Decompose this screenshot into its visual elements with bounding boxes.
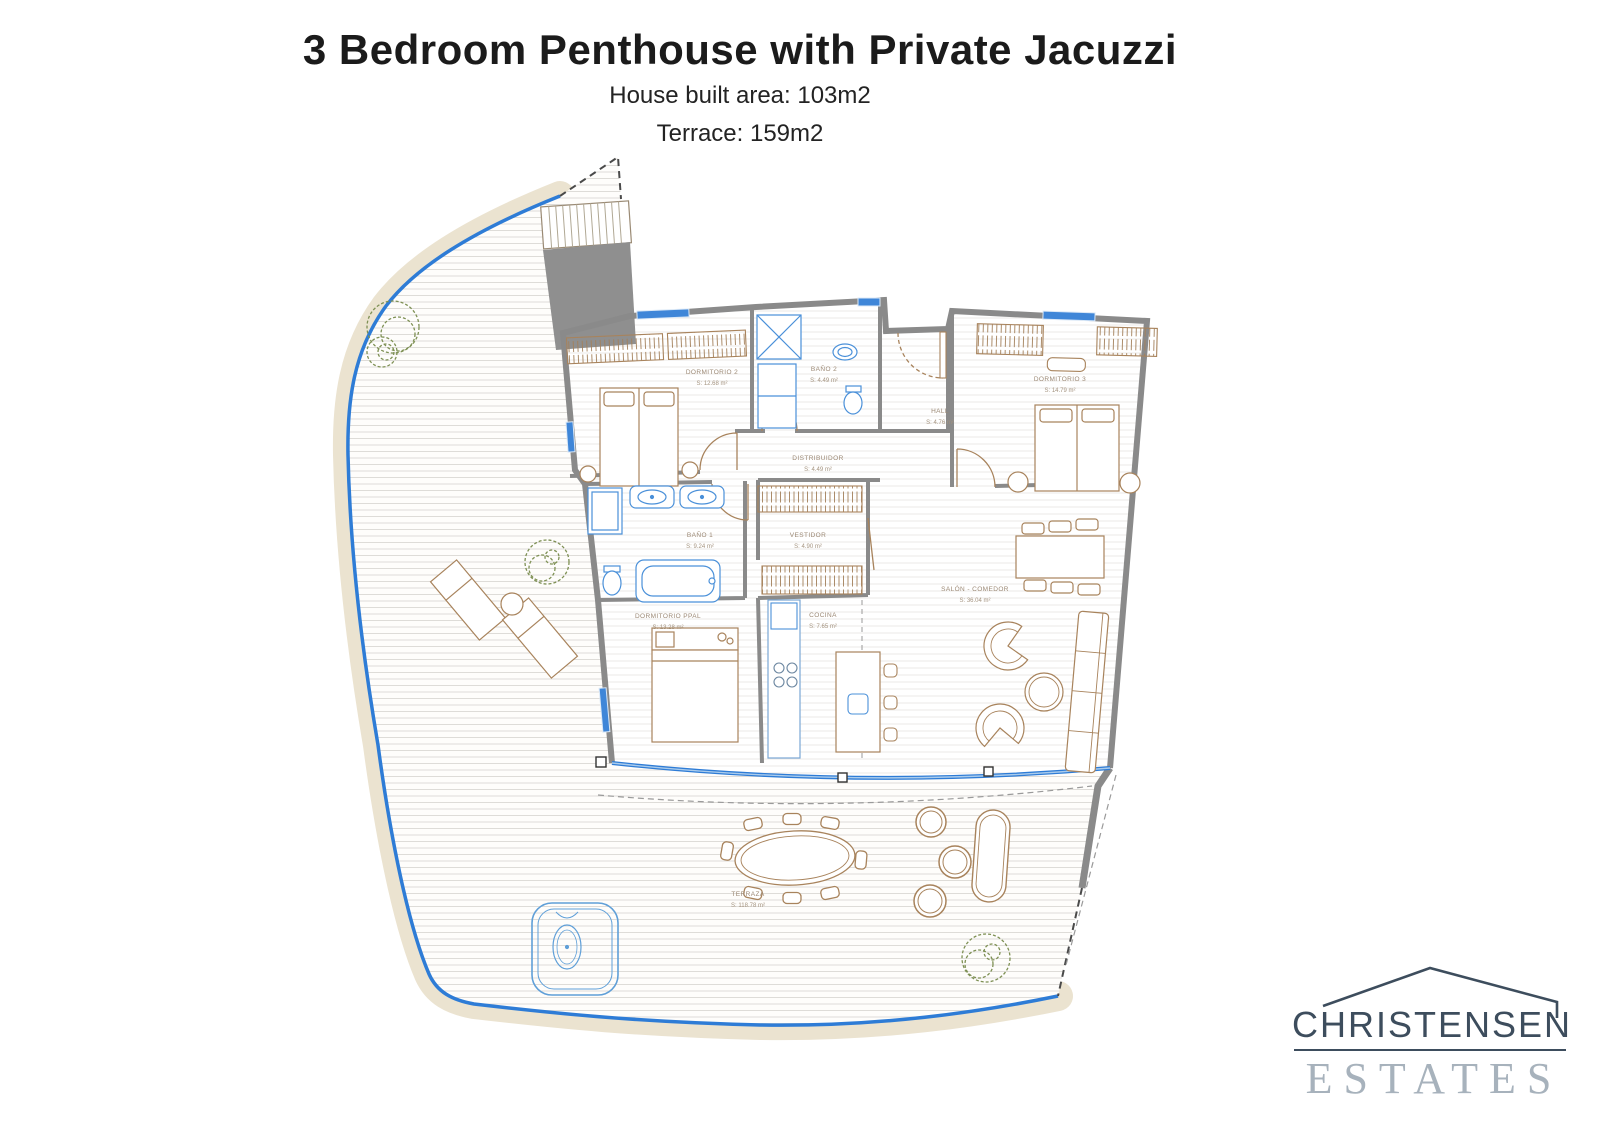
dorm2-nightstand (580, 466, 596, 482)
window-dorm3 (1043, 311, 1095, 321)
room-label-hall: HALL (931, 408, 949, 415)
dorm3-nightstand (1120, 473, 1140, 493)
room-area-salon-comedor: S: 36.04 m² (959, 598, 990, 604)
room-label-dormitorio-3: DORMITORIO 3 (1034, 376, 1086, 383)
room-area-vestidor: S: 4.90 m² (794, 544, 822, 550)
coffee-table (1025, 673, 1063, 711)
page: 3 Bedroom Penthouse with Private Jacuzzi… (0, 0, 1600, 1131)
window-left-wall (566, 422, 575, 452)
dorm3-bench (1047, 358, 1085, 372)
dorm3-nightstand (1008, 472, 1028, 492)
bano2-toilet (844, 392, 862, 414)
bano1-toilet (603, 571, 621, 595)
stairwell (541, 201, 632, 249)
kitchen-fridge (771, 603, 797, 629)
dormppal-bed (652, 628, 738, 742)
room-area-cocina: S: 7.65 m² (809, 624, 837, 630)
island-sink (848, 694, 868, 714)
building-core (543, 242, 636, 350)
logo-line1: CHRISTENSEN (1292, 1004, 1568, 1046)
logo-divider (1294, 1049, 1566, 1051)
room-area-bano-2: S: 4.49 m² (810, 378, 838, 384)
room-label-distribuidor: DISTRIBUIDOR (792, 455, 843, 462)
room-label-cocina: COCINA (809, 612, 837, 619)
room-area-dormitorio-2: S: 12.68 m² (696, 381, 727, 387)
window-hall (858, 298, 880, 306)
room-area-bano-1: S: 9.24 m² (686, 544, 714, 550)
window-dorm2 (637, 309, 689, 319)
terrace-day-lounger (971, 809, 1011, 903)
room-area-terraza: S: 118.78 m² (731, 903, 765, 909)
island-stools (884, 664, 897, 741)
room-label-vestidor: VESTIDOR (790, 532, 826, 539)
room-area-dormitorio-ppal: S: 13.28 m² (652, 625, 683, 631)
room-area-hall: S: 4.76 m² (926, 420, 954, 426)
agency-logo: CHRISTENSEN ESTATES (1292, 962, 1568, 1104)
room-area-dormitorio-3: S: 14.79 m² (1044, 388, 1075, 394)
side-table (501, 593, 523, 615)
bano2-toilet-tank (846, 386, 861, 392)
room-label-bano-2: BAÑO 2 (811, 364, 837, 373)
room-label-bano-1: BAÑO 1 (687, 530, 713, 539)
room-label-dormitorio-2: DORMITORIO 2 (686, 369, 738, 376)
room-label-dormitorio-ppal: DORMITORIO PPAL (635, 613, 701, 620)
logo-line2: ESTATES (1300, 1053, 1568, 1104)
dorm2-nightstand (682, 462, 698, 478)
room-label-salon-comedor: SALÓN - COMEDOR (941, 584, 1009, 593)
room-label-terraza: TERRAZA (731, 891, 764, 898)
dining-set (1016, 519, 1104, 595)
entry-door-leaf (940, 332, 946, 378)
room-area-distribuidor: S: 4.49 m² (804, 467, 832, 473)
dining-table (1016, 536, 1104, 578)
